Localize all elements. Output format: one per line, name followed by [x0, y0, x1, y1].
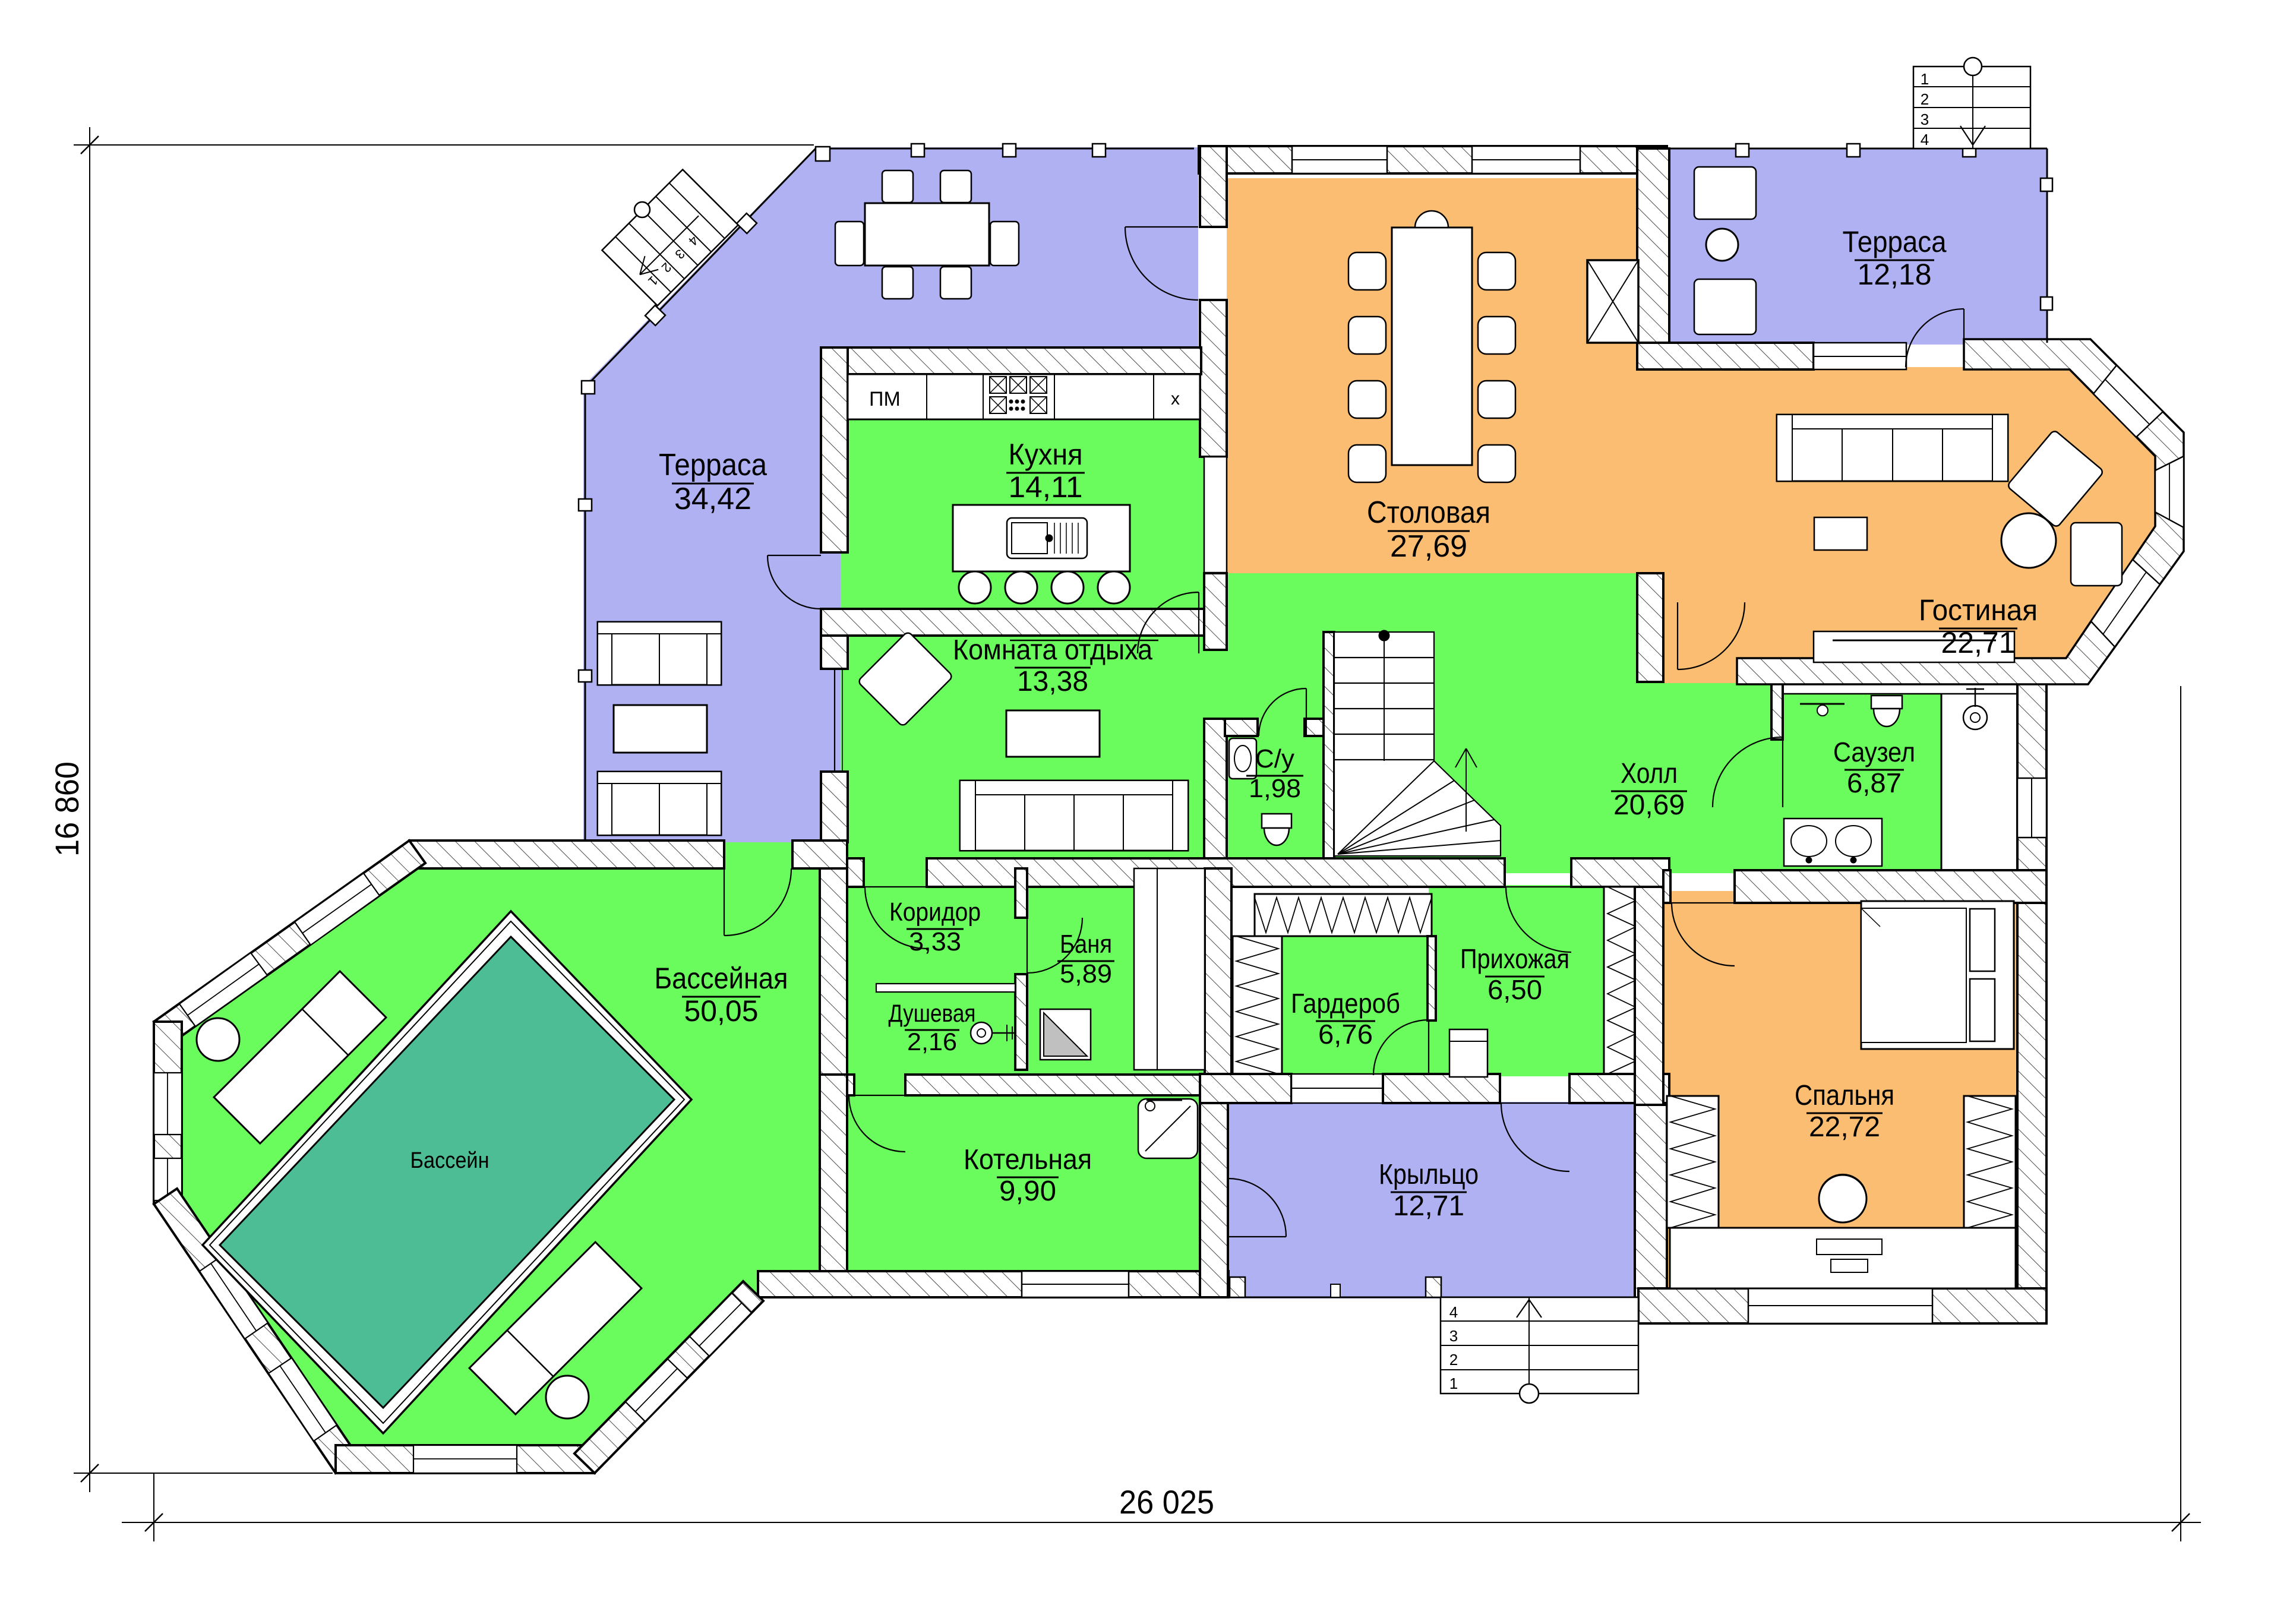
- svg-text:Гостиная: Гостиная: [1919, 593, 2038, 627]
- svg-text:6,50: 6,50: [1487, 974, 1542, 1005]
- svg-text:Гардероб: Гардероб: [1291, 988, 1400, 1019]
- svg-text:3: 3: [1921, 110, 1929, 128]
- svg-text:Столовая: Столовая: [1367, 495, 1490, 530]
- svg-text:2,16: 2,16: [907, 1028, 957, 1056]
- svg-text:20,69: 20,69: [1613, 789, 1685, 821]
- svg-text:5,89: 5,89: [1060, 959, 1112, 988]
- svg-text:4: 4: [1921, 131, 1929, 149]
- svg-text:22,71: 22,71: [1941, 626, 2016, 659]
- svg-text:ПМ: ПМ: [869, 388, 901, 410]
- svg-text:x: x: [1171, 389, 1180, 409]
- svg-text:2: 2: [1449, 1351, 1458, 1369]
- svg-text:Котельная: Котельная: [964, 1144, 1092, 1176]
- svg-text:3: 3: [1449, 1327, 1458, 1345]
- svg-text:Бассейн: Бассейн: [410, 1148, 489, 1173]
- svg-text:16 860: 16 860: [48, 762, 86, 857]
- svg-text:34,42: 34,42: [674, 482, 751, 516]
- svg-text:С/у: С/у: [1255, 744, 1294, 773]
- svg-text:Терраса: Терраса: [659, 448, 767, 482]
- svg-text:Прихожая: Прихожая: [1460, 943, 1569, 974]
- svg-text:Холл: Холл: [1621, 758, 1678, 789]
- svg-text:Саузел: Саузел: [1833, 737, 1915, 767]
- svg-text:1: 1: [1921, 70, 1929, 88]
- svg-text:Терраса: Терраса: [1843, 225, 1947, 258]
- svg-text:6,87: 6,87: [1847, 767, 1902, 798]
- svg-text:Спальня: Спальня: [1795, 1080, 1894, 1111]
- svg-text:Коридор: Коридор: [889, 898, 981, 927]
- svg-text:14,11: 14,11: [1009, 470, 1083, 504]
- svg-text:22,72: 22,72: [1809, 1111, 1880, 1143]
- svg-text:3,33: 3,33: [909, 927, 961, 956]
- svg-text:27,69: 27,69: [1390, 529, 1467, 564]
- svg-text:Крыльцо: Крыльцо: [1379, 1159, 1479, 1190]
- svg-text:Комната отдыха: Комната отдыха: [953, 634, 1152, 666]
- svg-text:12,18: 12,18: [1858, 258, 1932, 291]
- svg-text:2: 2: [1921, 90, 1929, 108]
- svg-text:9,90: 9,90: [999, 1176, 1056, 1207]
- svg-text:Бассейная: Бассейная: [655, 962, 788, 995]
- svg-text:Душевая: Душевая: [889, 999, 976, 1027]
- svg-text:13,38: 13,38: [1017, 666, 1088, 697]
- svg-text:Баня: Баня: [1060, 930, 1112, 959]
- svg-text:1: 1: [1449, 1375, 1458, 1392]
- svg-text:50,05: 50,05: [684, 994, 759, 1028]
- svg-text:12,71: 12,71: [1393, 1190, 1464, 1222]
- svg-text:1,98: 1,98: [1249, 774, 1301, 803]
- svg-text:4: 4: [1449, 1303, 1458, 1321]
- svg-text:26 025: 26 025: [1119, 1483, 1214, 1521]
- svg-text:Кухня: Кухня: [1009, 438, 1083, 471]
- svg-text:6,76: 6,76: [1318, 1019, 1373, 1050]
